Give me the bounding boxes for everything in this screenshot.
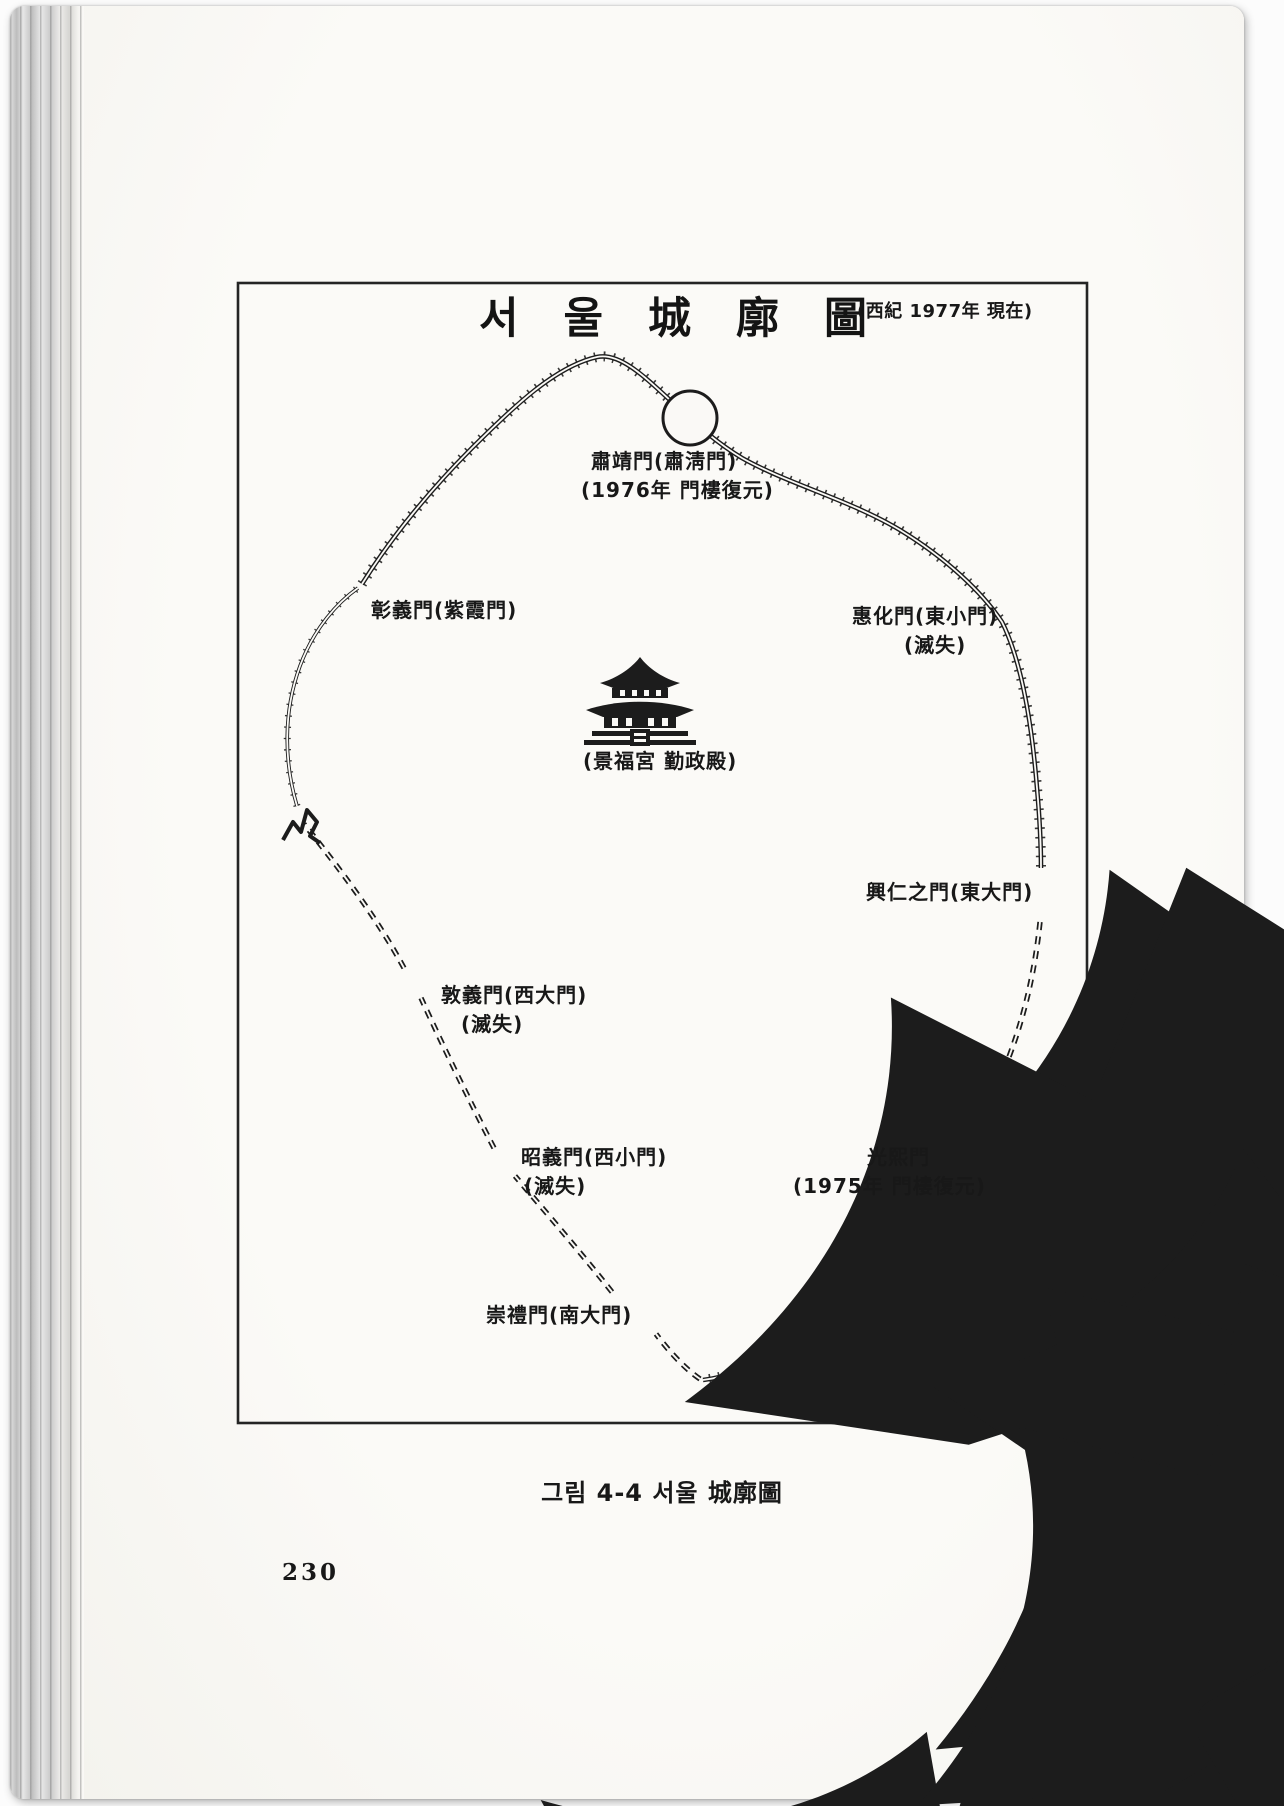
label-hyehwamun: 惠化門(東小門) (滅失)	[852, 602, 998, 660]
gate-name: 惠化門(東小門)	[852, 602, 998, 631]
label-donuimun: 敦義門(西大門) (滅失)	[441, 981, 587, 1039]
palace-name: (景福宮 勤政殿)	[583, 747, 737, 776]
page-edge-stack	[10, 6, 84, 1799]
gate-name: 興仁之門(東大門)	[866, 878, 1033, 907]
gate-note: (1975年 門樓復元)	[793, 1172, 986, 1201]
gate-name: 肅靖門(肅淸門)	[591, 447, 774, 476]
gate-name: 光熙門	[867, 1143, 986, 1172]
gate-name: 昭義門(西小門)	[521, 1143, 667, 1172]
map-title: 서 울 城 廓 圖	[479, 284, 882, 346]
gate-note: (滅失)	[524, 1172, 667, 1201]
page-surface	[84, 6, 1244, 1799]
gate-name: 崇禮門(南大門)	[486, 1301, 632, 1330]
gate-name: 彰義門(紫霞門)	[371, 596, 517, 625]
book	[10, 6, 1244, 1799]
label-heunginjimun: 興仁之門(東大門)	[866, 878, 1033, 907]
label-sungnyemun: 崇禮門(南大門)	[486, 1301, 632, 1330]
map-title-note: (西紀 1977年 現在)	[857, 297, 1033, 323]
label-soeuimun: 昭義門(西小門) (滅失)	[521, 1143, 667, 1201]
gate-note: (1976年 門樓復元)	[581, 476, 774, 505]
figure-caption: 그림 4-4 서울 城廓圖	[487, 1473, 837, 1508]
label-gwanghuimun: 光熙門 (1975年 門樓復元)	[793, 1143, 986, 1201]
book-page: 서 울 城 廓 圖 (西紀 1977年 現在) 肅靖門(肅淸門) (1976年 …	[0, 0, 1284, 1806]
gate-name: 敦義門(西大門)	[441, 981, 587, 1010]
gate-note: (滅失)	[461, 1010, 587, 1039]
label-gyeongbokgung: (景福宮 勤政殿)	[583, 747, 737, 776]
page-number: 230	[282, 1559, 339, 1586]
label-changuimun: 彰義門(紫霞門)	[371, 596, 517, 625]
gate-note: (滅失)	[904, 631, 998, 660]
label-sukjeongmun: 肅靖門(肅淸門) (1976年 門樓復元)	[581, 447, 774, 505]
